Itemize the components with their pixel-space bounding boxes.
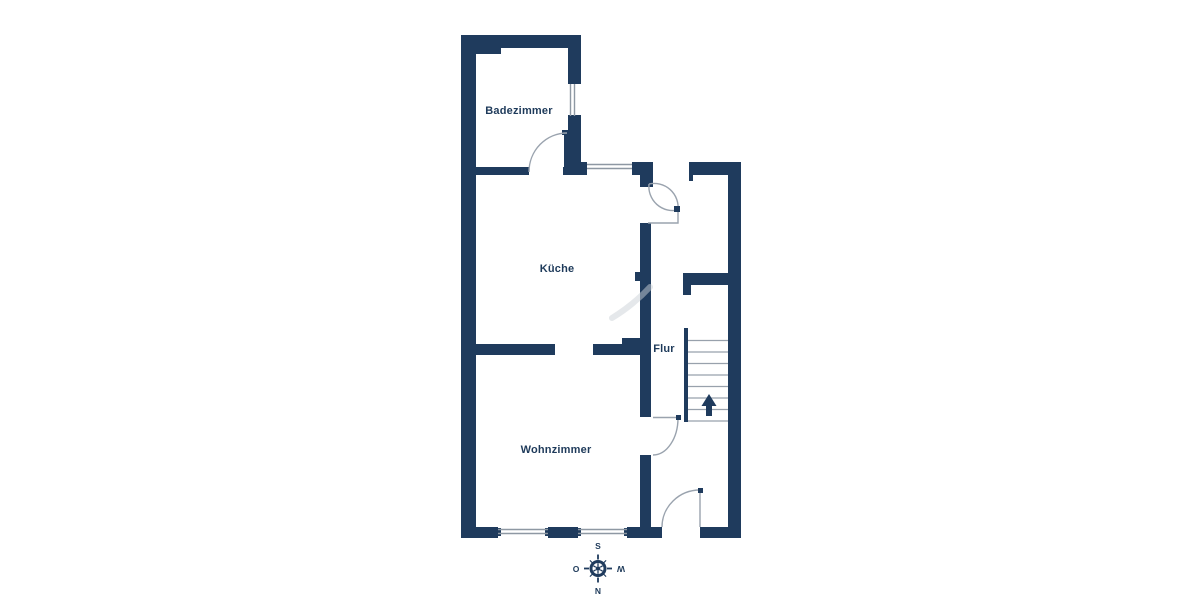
- wall-entry-block-leg: [640, 175, 653, 187]
- wall-outer-left: [461, 35, 476, 538]
- entrance-door-nub: [698, 488, 703, 493]
- floor-plan: Badezimmer Küche Flur Wohnzimmer S O W N: [0, 0, 1200, 600]
- wall-entry-block: [632, 162, 653, 175]
- wall-top-notch: [476, 48, 501, 54]
- compass-label-north: N: [595, 586, 601, 596]
- stairs-up-arrow-icon: [702, 394, 717, 416]
- room-label-kueche: Küche: [540, 263, 575, 275]
- wall-bath-bottom-left: [461, 167, 529, 175]
- wall-bottom-seg4: [700, 527, 741, 538]
- bath-door-leaf: [564, 133, 569, 171]
- window-wohnzimmer-left: [498, 530, 548, 534]
- room-label-wohnzimmer: Wohnzimmer: [521, 444, 592, 456]
- flur-door-nub: [676, 415, 681, 420]
- wall-stair-stub: [683, 273, 728, 285]
- room-label-badezimmer: Badezimmer: [485, 105, 552, 117]
- compass-label-south: S: [595, 541, 601, 551]
- wall-bath-right-lower: [568, 118, 581, 175]
- window-wohnzimmer-right: [578, 530, 627, 534]
- door-entrance-bottom: [662, 488, 703, 527]
- wall-stair-stub-leg: [683, 285, 691, 295]
- door-wohnzimmer-flur: [653, 415, 681, 455]
- room-label-flur: Flur: [653, 343, 675, 355]
- floor-plan-drawing: [0, 0, 1200, 600]
- doors: [529, 133, 703, 527]
- window-badezimmer: [571, 84, 575, 116]
- entry-door-nub: [674, 206, 680, 212]
- wall-divider-upper: [640, 223, 651, 417]
- compass-label-east: O: [573, 564, 580, 574]
- wall-kitchen-living-bump: [622, 338, 641, 344]
- wall-stair-side: [684, 328, 688, 422]
- wall-outer-right: [728, 162, 741, 538]
- window-cap: [568, 81, 581, 84]
- wall-bath-right-upper: [568, 48, 581, 82]
- wall-kitchen-living-left: [461, 344, 555, 355]
- wall-bath-bottom-right: [563, 167, 581, 175]
- wall-outer-top: [461, 35, 581, 48]
- wall-bottom-seg1: [461, 527, 498, 538]
- door-arc-badezimmer: [529, 133, 567, 172]
- wall-kitchen-living-right: [593, 344, 641, 355]
- wall-divider-tick: [635, 272, 640, 281]
- compass-rose-icon: [584, 555, 612, 583]
- wall-bottom-seg2: [548, 527, 578, 538]
- staircase: [688, 341, 728, 422]
- window-kueche-top: [587, 165, 632, 169]
- wall-bottom-seg3: [627, 527, 662, 538]
- door-entry: [648, 183, 680, 223]
- wall-kitchen-top-corner: [581, 162, 587, 175]
- entry-door-frame-nub: [689, 175, 693, 181]
- compass-label-west: W: [617, 564, 625, 574]
- wall-divider-lower: [640, 455, 651, 527]
